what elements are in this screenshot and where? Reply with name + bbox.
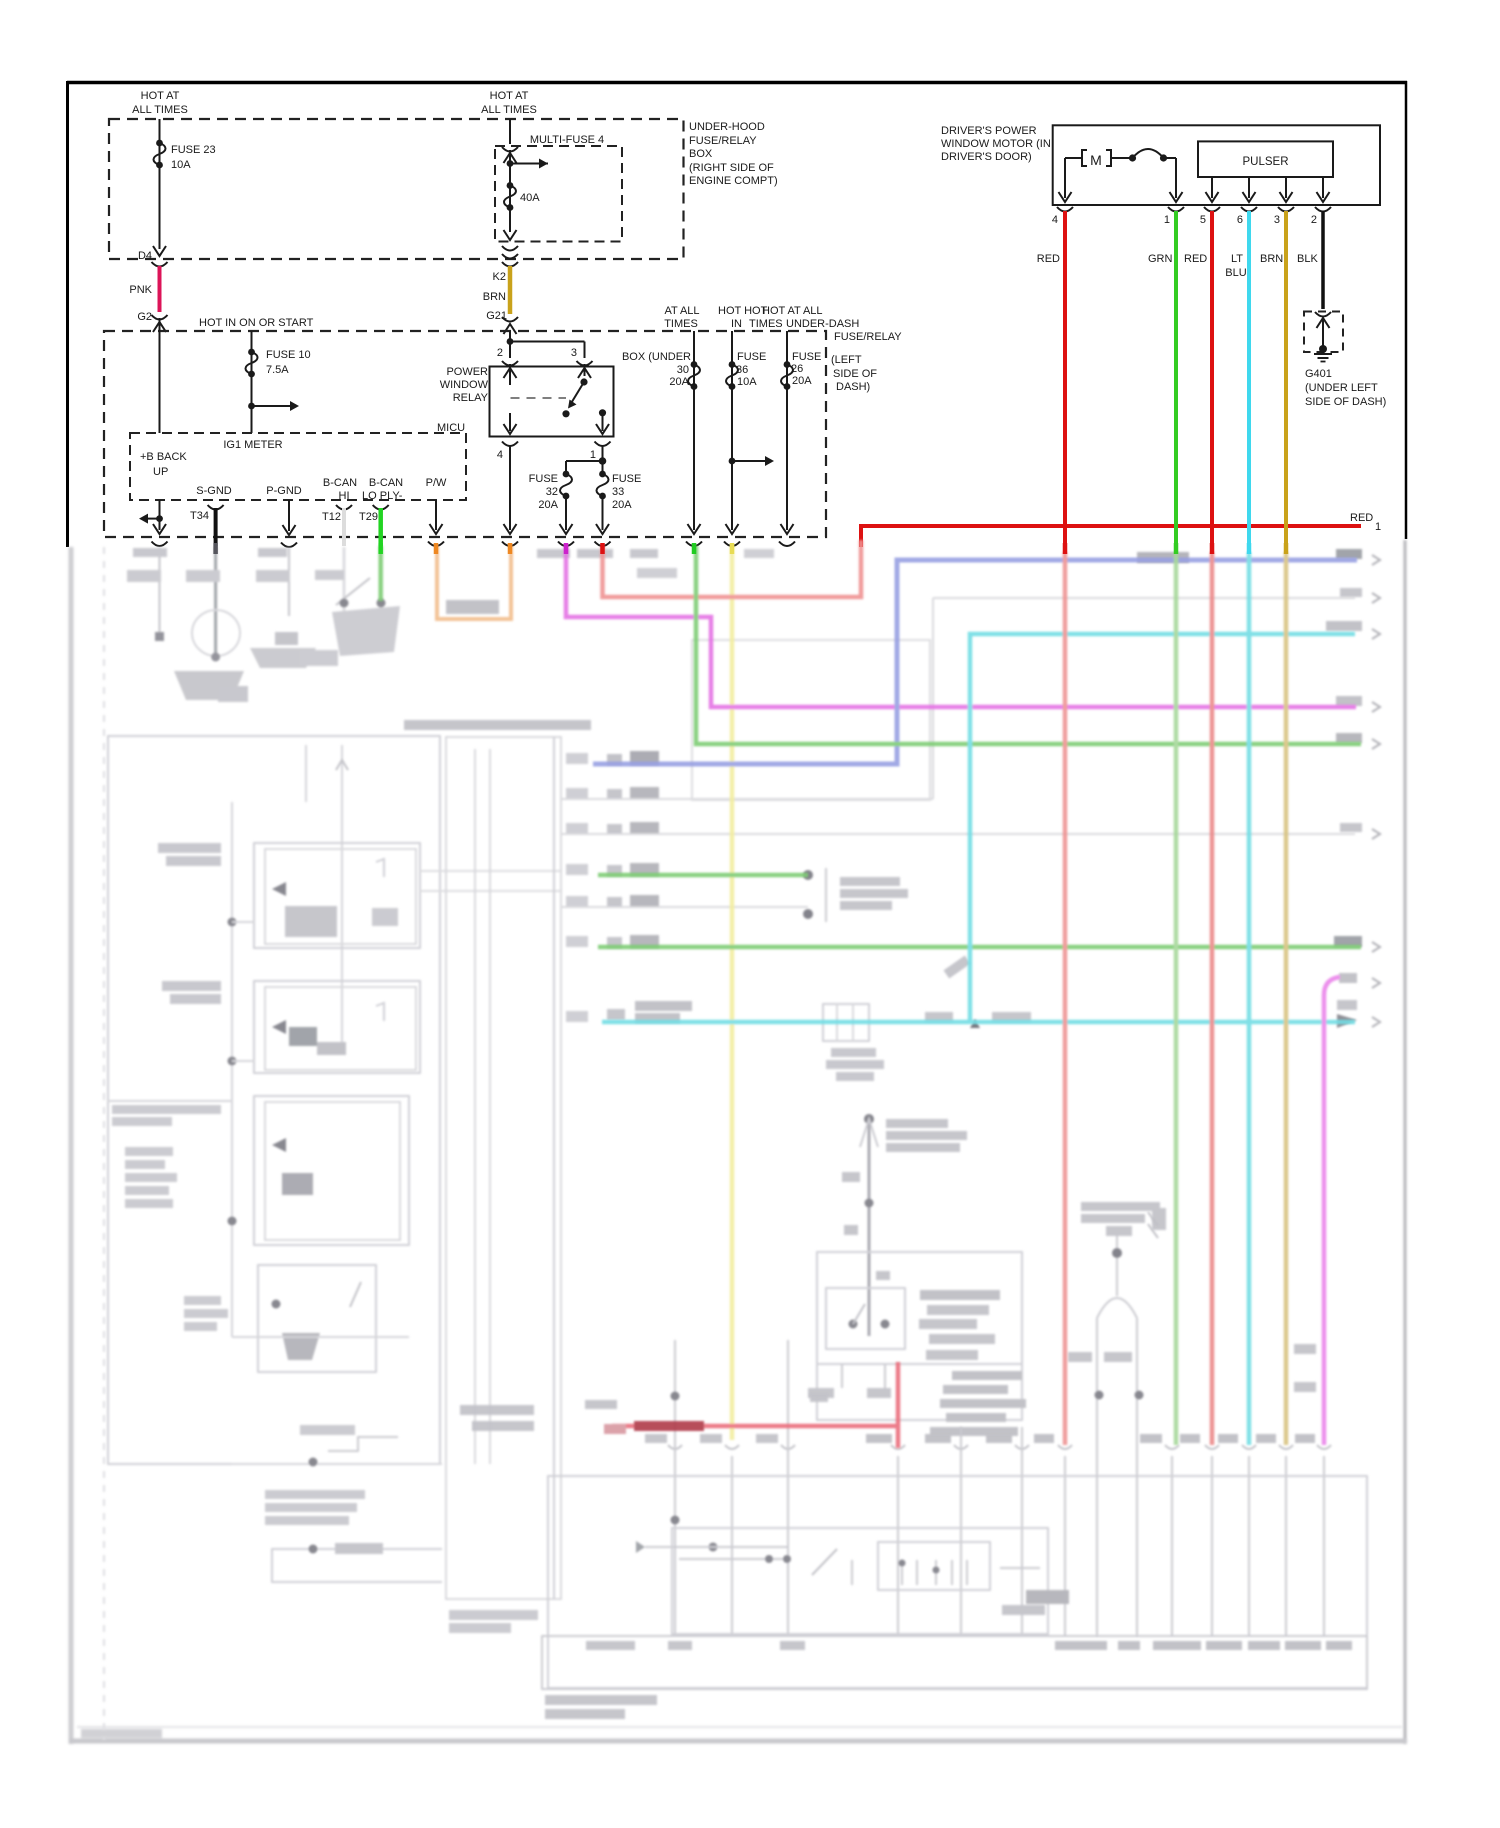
svg-text:4: 4	[497, 449, 503, 461]
svg-text:FUSE: FUSE	[529, 473, 558, 485]
svg-text:DRIVER'S DOOR): DRIVER'S DOOR)	[941, 151, 1032, 163]
svg-text:K2: K2	[493, 271, 506, 283]
svg-text:UNDER-DASH: UNDER-DASH	[786, 318, 859, 330]
svg-text:40A: 40A	[520, 192, 540, 204]
svg-text:RED: RED	[1037, 253, 1060, 265]
svg-text:B-CAN: B-CAN	[323, 477, 357, 489]
svg-text:HOT AT: HOT AT	[490, 90, 529, 102]
svg-text:DASH): DASH)	[836, 381, 870, 393]
svg-text:+B BACK: +B BACK	[140, 451, 187, 463]
svg-text:20A: 20A	[538, 499, 558, 511]
svg-text:BRN: BRN	[1260, 253, 1283, 265]
svg-text:30: 30	[677, 364, 689, 376]
svg-text:FUSE 10: FUSE 10	[266, 349, 311, 361]
svg-text:DRIVER'S POWER: DRIVER'S POWER	[941, 125, 1037, 137]
svg-text:1: 1	[590, 449, 596, 461]
svg-text:UP: UP	[153, 466, 168, 478]
svg-text:M: M	[1090, 152, 1102, 168]
svg-text:MULTI-FUSE 4: MULTI-FUSE 4	[530, 134, 604, 146]
svg-text:32: 32	[546, 486, 558, 498]
svg-text:6: 6	[1237, 214, 1243, 226]
svg-text:FUSE: FUSE	[737, 351, 766, 363]
svg-text:10A: 10A	[737, 376, 757, 388]
svg-text:33: 33	[612, 486, 624, 498]
svg-text:PULSER: PULSER	[1242, 156, 1288, 168]
svg-text:T29: T29	[359, 511, 378, 523]
svg-text:GRN: GRN	[1148, 253, 1173, 265]
svg-text:IN: IN	[731, 318, 742, 330]
svg-text:RED: RED	[1184, 253, 1207, 265]
svg-text:BOX (UNDER: BOX (UNDER	[622, 351, 691, 363]
svg-text:FUSE/RELAY: FUSE/RELAY	[834, 331, 902, 343]
svg-text:S-GND: S-GND	[196, 485, 232, 497]
svg-text:FUSE/RELAY: FUSE/RELAY	[689, 135, 757, 147]
svg-text:HOT AT: HOT AT	[141, 90, 180, 102]
svg-text:PNK: PNK	[129, 284, 152, 296]
svg-text:TIMES: TIMES	[664, 318, 698, 330]
svg-text:ALL TIMES: ALL TIMES	[132, 104, 188, 116]
svg-text:P-GND: P-GND	[266, 485, 302, 497]
svg-text:HI: HI	[339, 490, 350, 502]
svg-text:T34: T34	[190, 510, 209, 522]
svg-text:3: 3	[571, 347, 577, 359]
svg-text:SIDE OF DASH): SIDE OF DASH)	[1305, 396, 1386, 408]
svg-text:RELAY: RELAY	[453, 392, 489, 404]
svg-text:7.5A: 7.5A	[266, 364, 289, 376]
svg-text:3: 3	[1274, 214, 1280, 226]
svg-text:20A: 20A	[669, 376, 689, 388]
svg-text:WINDOW MOTOR (IN: WINDOW MOTOR (IN	[941, 138, 1051, 150]
svg-text:AT ALL: AT ALL	[664, 305, 699, 317]
svg-text:4: 4	[1052, 214, 1058, 226]
svg-text:1: 1	[1164, 214, 1170, 226]
svg-text:UNDER-HOOD: UNDER-HOOD	[689, 121, 765, 133]
svg-text:BLK: BLK	[1297, 253, 1318, 265]
svg-text:BOX: BOX	[689, 148, 713, 160]
svg-text:ENGINE COMPT): ENGINE COMPT)	[689, 175, 778, 187]
svg-text:HOT IN ON OR START: HOT IN ON OR START	[199, 317, 314, 329]
svg-text:D4: D4	[138, 250, 152, 262]
svg-text:HOT AT ALL: HOT AT ALL	[762, 305, 823, 317]
svg-text:2: 2	[1311, 214, 1317, 226]
svg-text:RED: RED	[1350, 512, 1373, 524]
svg-text:G2: G2	[137, 311, 152, 323]
svg-text:G21: G21	[486, 310, 507, 322]
svg-text:HOT HOT: HOT HOT	[718, 305, 768, 317]
svg-text:FUSE 23: FUSE 23	[171, 144, 216, 156]
svg-text:20A: 20A	[792, 375, 812, 387]
svg-text:POWER: POWER	[446, 366, 488, 378]
svg-text:FUSE: FUSE	[612, 473, 641, 485]
svg-text:MICU: MICU	[437, 422, 465, 434]
svg-text:2: 2	[497, 347, 503, 359]
svg-text:G401: G401	[1305, 368, 1332, 380]
svg-text:SIDE OF: SIDE OF	[833, 368, 877, 380]
svg-text:20A: 20A	[612, 499, 632, 511]
svg-text:T12: T12	[322, 511, 341, 523]
svg-text:BLU: BLU	[1225, 267, 1246, 279]
svg-text:IG1 METER: IG1 METER	[223, 439, 282, 451]
svg-text:(LEFT: (LEFT	[831, 354, 862, 366]
svg-text:5: 5	[1200, 214, 1206, 226]
svg-text:WINDOW: WINDOW	[440, 379, 489, 391]
svg-text:TIMES: TIMES	[749, 318, 783, 330]
svg-text:P/W: P/W	[426, 477, 447, 489]
svg-text:BRN: BRN	[483, 291, 506, 303]
svg-text:LT: LT	[1231, 253, 1243, 265]
svg-text:(UNDER LEFT: (UNDER LEFT	[1305, 382, 1378, 394]
svg-text:10A: 10A	[171, 159, 191, 171]
svg-text:FUSE: FUSE	[792, 351, 821, 363]
svg-text:(RIGHT SIDE OF: (RIGHT SIDE OF	[689, 162, 774, 174]
svg-text:1: 1	[1375, 521, 1381, 533]
svg-text:LO PLY-: LO PLY-	[362, 490, 403, 502]
svg-text:ALL TIMES: ALL TIMES	[481, 104, 537, 116]
svg-text:B-CAN: B-CAN	[369, 477, 403, 489]
